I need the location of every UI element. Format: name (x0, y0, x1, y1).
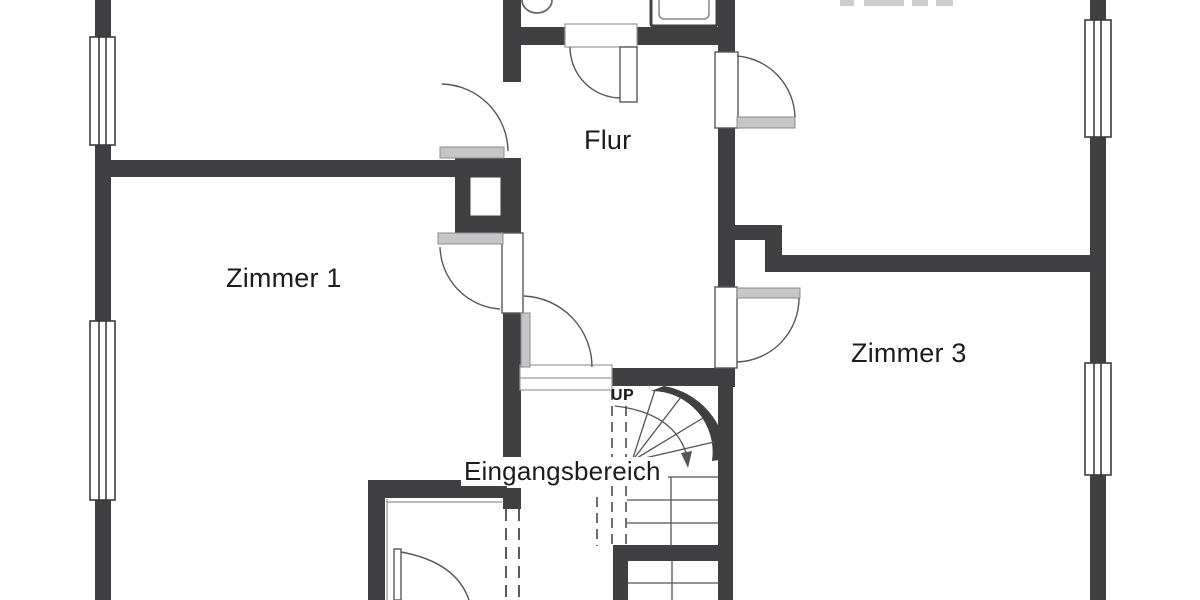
room-label-zimmer1: Zimmer 1 (226, 264, 342, 292)
stair-curved-wall (651, 386, 727, 461)
stair-wall-right (718, 386, 733, 600)
floor-plan-drawing (0, 0, 1200, 600)
door-zimmer3 (715, 287, 800, 368)
window-right-upper (1085, 20, 1111, 137)
wall-jog-a (735, 225, 782, 240)
stair-treads (627, 390, 718, 600)
wall-left-top (95, 0, 111, 38)
bathroom-fixtures (522, 0, 717, 26)
entrance-dashed-opening (506, 509, 519, 598)
wall-flur-top-b (637, 27, 718, 45)
door-flur-from-hall (521, 296, 592, 367)
wall-zimmer1-top (95, 160, 460, 177)
wall-center-right-a (718, 0, 735, 52)
window-left-lower (90, 321, 115, 500)
wall-right-mid (1090, 136, 1106, 364)
walk-line-arrow (681, 451, 692, 468)
wall-left-bottom (95, 499, 111, 600)
clipped-room-label-fragment (840, 0, 953, 6)
wall-zimmer3-top (780, 255, 1106, 272)
wall-center-right-b (718, 127, 735, 287)
door-flur-top (565, 24, 637, 102)
room-label-flur: Flur (584, 126, 631, 154)
door-bottom-room (394, 549, 469, 600)
stair-wall-left-lower (613, 561, 628, 600)
toilet-icon (522, 0, 552, 13)
window-left-upper (90, 37, 115, 145)
wall-inner-face-lines (387, 499, 502, 600)
door-upper-left-room (440, 84, 508, 158)
door-upper-right-room (715, 52, 795, 128)
chimney-flue-opening (470, 177, 501, 216)
room-label-zimmer3: Zimmer 3 (851, 339, 967, 367)
wall-right-top (1090, 0, 1106, 21)
washbasin-icon (651, 0, 717, 26)
wall-bottomroom-left (368, 480, 385, 600)
wall-right-bottom (1090, 474, 1106, 600)
room-label-eingangsbereich: Eingangsbereich (461, 457, 664, 486)
exterior-walls (95, 0, 1106, 600)
window-right-lower (1085, 363, 1111, 475)
wall-jog-b (765, 240, 782, 272)
interior-walls (95, 0, 1106, 600)
stair-wall-top (612, 368, 733, 386)
stair-direction-label: UP (611, 388, 634, 405)
wall-center-left-b (503, 313, 521, 457)
door-zimmer1 (438, 233, 523, 313)
stair-wall-landing (613, 545, 733, 561)
floor-plan: Flur Zimmer 1 Zimmer 3 Eingangsbereich U… (0, 0, 1200, 600)
wall-flur-top-a (521, 27, 566, 45)
stair-entry-steps (520, 365, 612, 390)
wall-center-left-a (503, 0, 521, 82)
